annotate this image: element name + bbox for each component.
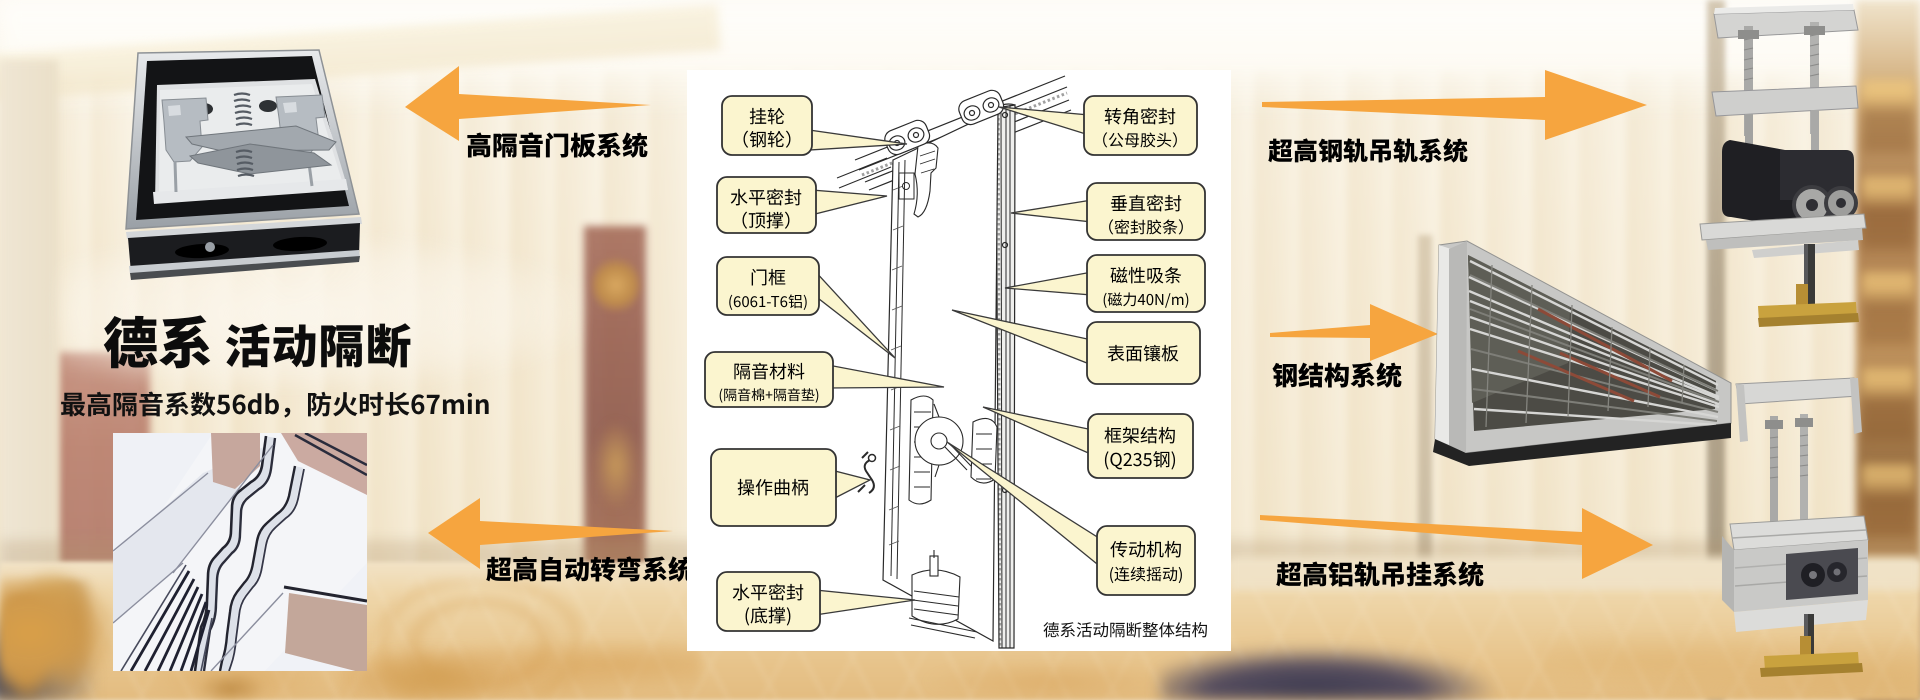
svg-text:（顶撑）: （顶撑） [730,207,802,233]
svg-text:门框: 门框 [750,264,786,290]
svg-text:转角密封: 转角密封 [1104,103,1176,129]
svg-text:垂直密封: 垂直密封 [1110,190,1182,216]
svg-text:隔音材料: 隔音材料 [733,358,805,384]
svg-text:德系活动隔断整体结构: 德系活动隔断整体结构 [1043,617,1208,641]
svg-text:操作曲柄: 操作曲柄 [737,474,809,500]
svg-text:(6061-T6铝): (6061-T6铝) [728,291,808,312]
svg-text:(磁力40N/m): (磁力40N/m) [1102,289,1189,310]
svg-text:(Q235钢): (Q235钢) [1103,446,1177,472]
svg-text:（公母胶头）: （公母胶头） [1092,127,1188,151]
svg-text:(底撑): (底撑) [744,602,792,628]
svg-text:框架结构: 框架结构 [1104,422,1176,448]
svg-text:（密封胶条）: （密封胶条） [1098,214,1194,238]
svg-text:(隔音棉+隔音垫): (隔音棉+隔音垫) [718,385,819,405]
svg-text:传动机构: 传动机构 [1110,536,1182,562]
svg-text:(连续摇动): (连续摇动) [1109,561,1184,585]
svg-text:磁性吸条: 磁性吸条 [1110,262,1182,288]
svg-text:表面镶板: 表面镶板 [1107,340,1179,366]
svg-text:（钢轮）: （钢轮） [731,126,803,152]
